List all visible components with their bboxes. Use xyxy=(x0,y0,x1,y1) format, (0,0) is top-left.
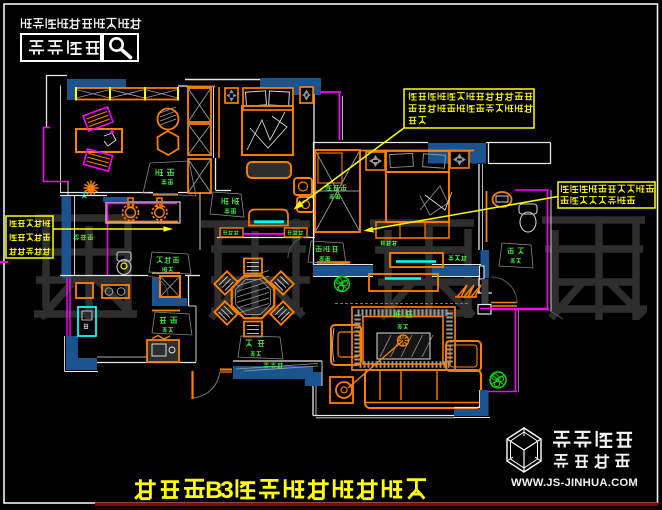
svg-text:3: 3 xyxy=(220,477,234,504)
svg-text:WWW.JS-JINHUA.COM: WWW.JS-JINHUA.COM xyxy=(511,477,638,489)
